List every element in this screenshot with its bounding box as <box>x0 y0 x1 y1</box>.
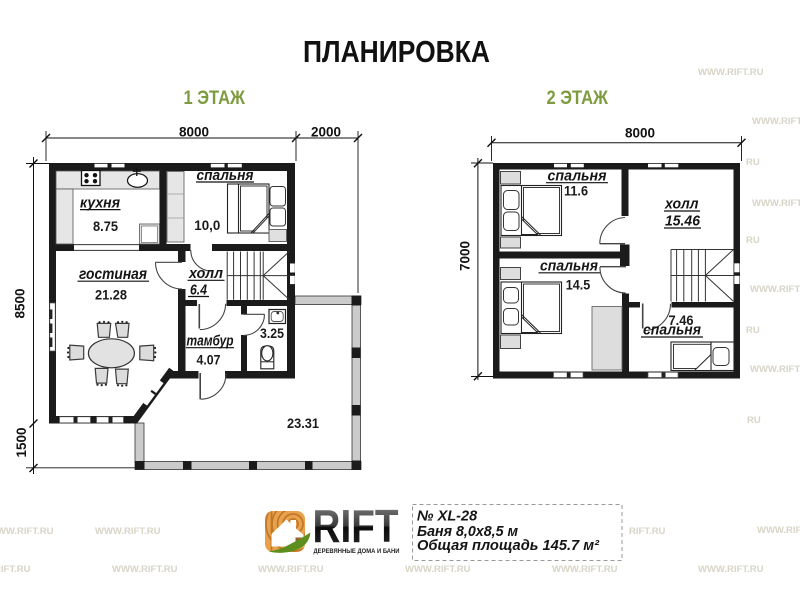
svg-text:WWW.RIFT.RU: WWW.RIFT.RU <box>552 564 618 575</box>
svg-text:спальня: спальня <box>643 322 701 339</box>
svg-text:23.31: 23.31 <box>287 416 319 431</box>
svg-text:кухня: кухня <box>80 195 120 212</box>
svg-text:WWW.RIFT.RU: WWW.RIFT.RU <box>752 116 800 127</box>
svg-text:8000: 8000 <box>625 126 655 141</box>
svg-text:21.28: 21.28 <box>95 288 127 303</box>
svg-text:RU: RU <box>746 157 760 168</box>
svg-text:Общая площадь 145.7 м²: Общая площадь 145.7 м² <box>417 538 600 554</box>
svg-text:холл: холл <box>664 196 699 213</box>
svg-text:WWW.RIFT.RU: WWW.RIFT.RU <box>750 364 800 375</box>
svg-text:10,0: 10,0 <box>194 217 220 233</box>
svg-text:WWW.RIFT.RU: WWW.RIFT.RU <box>757 525 800 536</box>
svg-text:7000: 7000 <box>458 241 473 271</box>
svg-text:2000: 2000 <box>311 125 341 140</box>
svg-text:11.6: 11.6 <box>564 184 588 199</box>
svg-text:14.5: 14.5 <box>566 278 591 293</box>
svg-text:1 ЭТАЖ: 1 ЭТАЖ <box>184 87 246 109</box>
svg-text:WWW.RIFT.RU: WWW.RIFT.RU <box>258 564 324 575</box>
svg-text:спальня: спальня <box>548 168 607 185</box>
svg-text:ДЕРЕВЯННЫЕ ДОМА И БАНИ: ДЕРЕВЯННЫЕ ДОМА И БАНИ <box>314 548 400 555</box>
svg-text:тамбур: тамбур <box>187 333 234 350</box>
svg-text:гостиная: гостиная <box>79 266 147 283</box>
svg-text:RU: RU <box>746 235 760 246</box>
svg-text:4.07: 4.07 <box>197 353 221 368</box>
svg-text:3.25: 3.25 <box>260 326 284 341</box>
svg-text:8500: 8500 <box>13 288 28 318</box>
svg-text:8.75: 8.75 <box>93 219 118 234</box>
svg-text:спальня: спальня <box>540 258 598 275</box>
svg-text:RU: RU <box>747 415 761 426</box>
svg-text:ПЛАНИРОВКА: ПЛАНИРОВКА <box>303 34 490 69</box>
svg-text:RIFT: RIFT <box>313 500 399 552</box>
svg-text:WWW.RIFT.RU: WWW.RIFT.RU <box>0 564 31 575</box>
svg-text:WWW.RIFT.RU: WWW.RIFT.RU <box>698 67 764 78</box>
svg-text:WWW.RIFT.RU: WWW.RIFT.RU <box>698 564 764 575</box>
svg-text:WWW.RIFT.RU: WWW.RIFT.RU <box>0 526 54 537</box>
svg-text:холл: холл <box>188 265 224 282</box>
svg-text:WWW.RIFT.RU: WWW.RIFT.RU <box>750 284 800 295</box>
svg-text:RU: RU <box>746 325 760 336</box>
svg-text:№ XL-28: № XL-28 <box>417 509 478 525</box>
svg-text:15.46: 15.46 <box>665 214 701 230</box>
svg-text:WWW.RIFT.RU: WWW.RIFT.RU <box>112 564 178 575</box>
svg-text:WWW.RIFT.RU: WWW.RIFT.RU <box>95 526 161 537</box>
svg-text:WWW.RIFT.RU: WWW.RIFT.RU <box>752 198 800 209</box>
svg-text:RIFT.RU: RIFT.RU <box>629 526 666 537</box>
svg-text:8000: 8000 <box>179 125 209 140</box>
svg-text:WWW.RIFT.RU: WWW.RIFT.RU <box>405 564 471 575</box>
svg-text:2 ЭТАЖ: 2 ЭТАЖ <box>547 87 609 109</box>
svg-text:1500: 1500 <box>14 427 29 457</box>
